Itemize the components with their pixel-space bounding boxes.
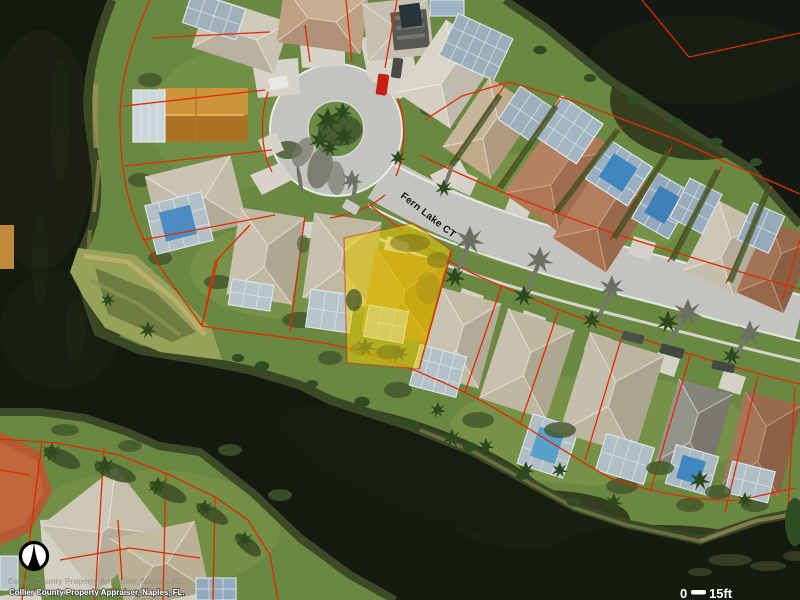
svg-text:15ft: 15ft [709, 586, 733, 600]
svg-text:0: 0 [680, 586, 687, 600]
svg-text:Collier County Property Apprai: Collier County Property Appraiser, Naple… [8, 577, 184, 586]
svg-text:Collier County Property Apprai: Collier County Property Appraiser, Naple… [9, 588, 185, 597]
